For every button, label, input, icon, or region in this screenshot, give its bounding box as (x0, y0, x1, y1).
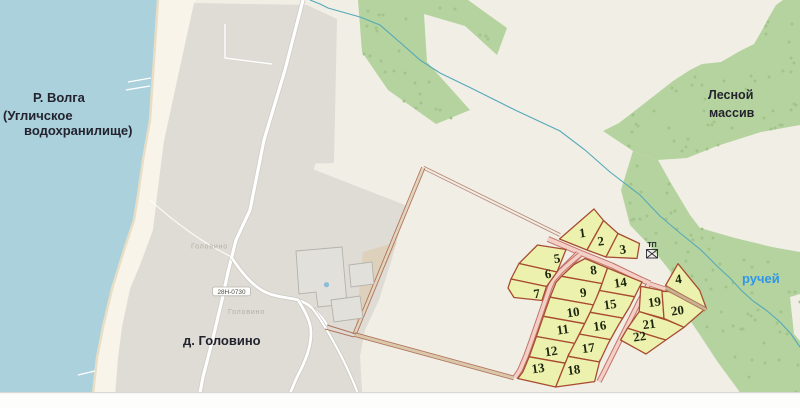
svg-text:ТП: ТП (647, 242, 656, 249)
svg-text:17: 17 (581, 339, 596, 356)
svg-text:Лесной: Лесной (708, 88, 753, 102)
svg-text:водохранилище): водохранилище) (24, 123, 132, 138)
svg-text:28Н-0730: 28Н-0730 (217, 289, 246, 296)
svg-text:Головино: Головино (191, 244, 228, 251)
svg-text:(Угличское: (Угличское (3, 108, 73, 123)
svg-text:22: 22 (632, 328, 647, 345)
svg-text:14: 14 (613, 274, 628, 291)
svg-text:16: 16 (592, 317, 607, 334)
svg-text:19: 19 (647, 293, 662, 310)
svg-text:20: 20 (670, 302, 685, 319)
svg-text:ручей: ручей (742, 271, 780, 286)
svg-text:Головино: Головино (228, 309, 265, 316)
svg-text:д. Головино: д. Головино (183, 333, 261, 348)
svg-text:массив: массив (709, 106, 755, 120)
svg-text:12: 12 (544, 343, 559, 360)
svg-text:13: 13 (531, 360, 546, 377)
svg-text:15: 15 (603, 296, 618, 313)
svg-text:11: 11 (556, 321, 570, 338)
svg-text:18: 18 (566, 361, 581, 378)
svg-text:Р. Волга: Р. Волга (33, 90, 86, 105)
svg-text:10: 10 (566, 304, 581, 321)
